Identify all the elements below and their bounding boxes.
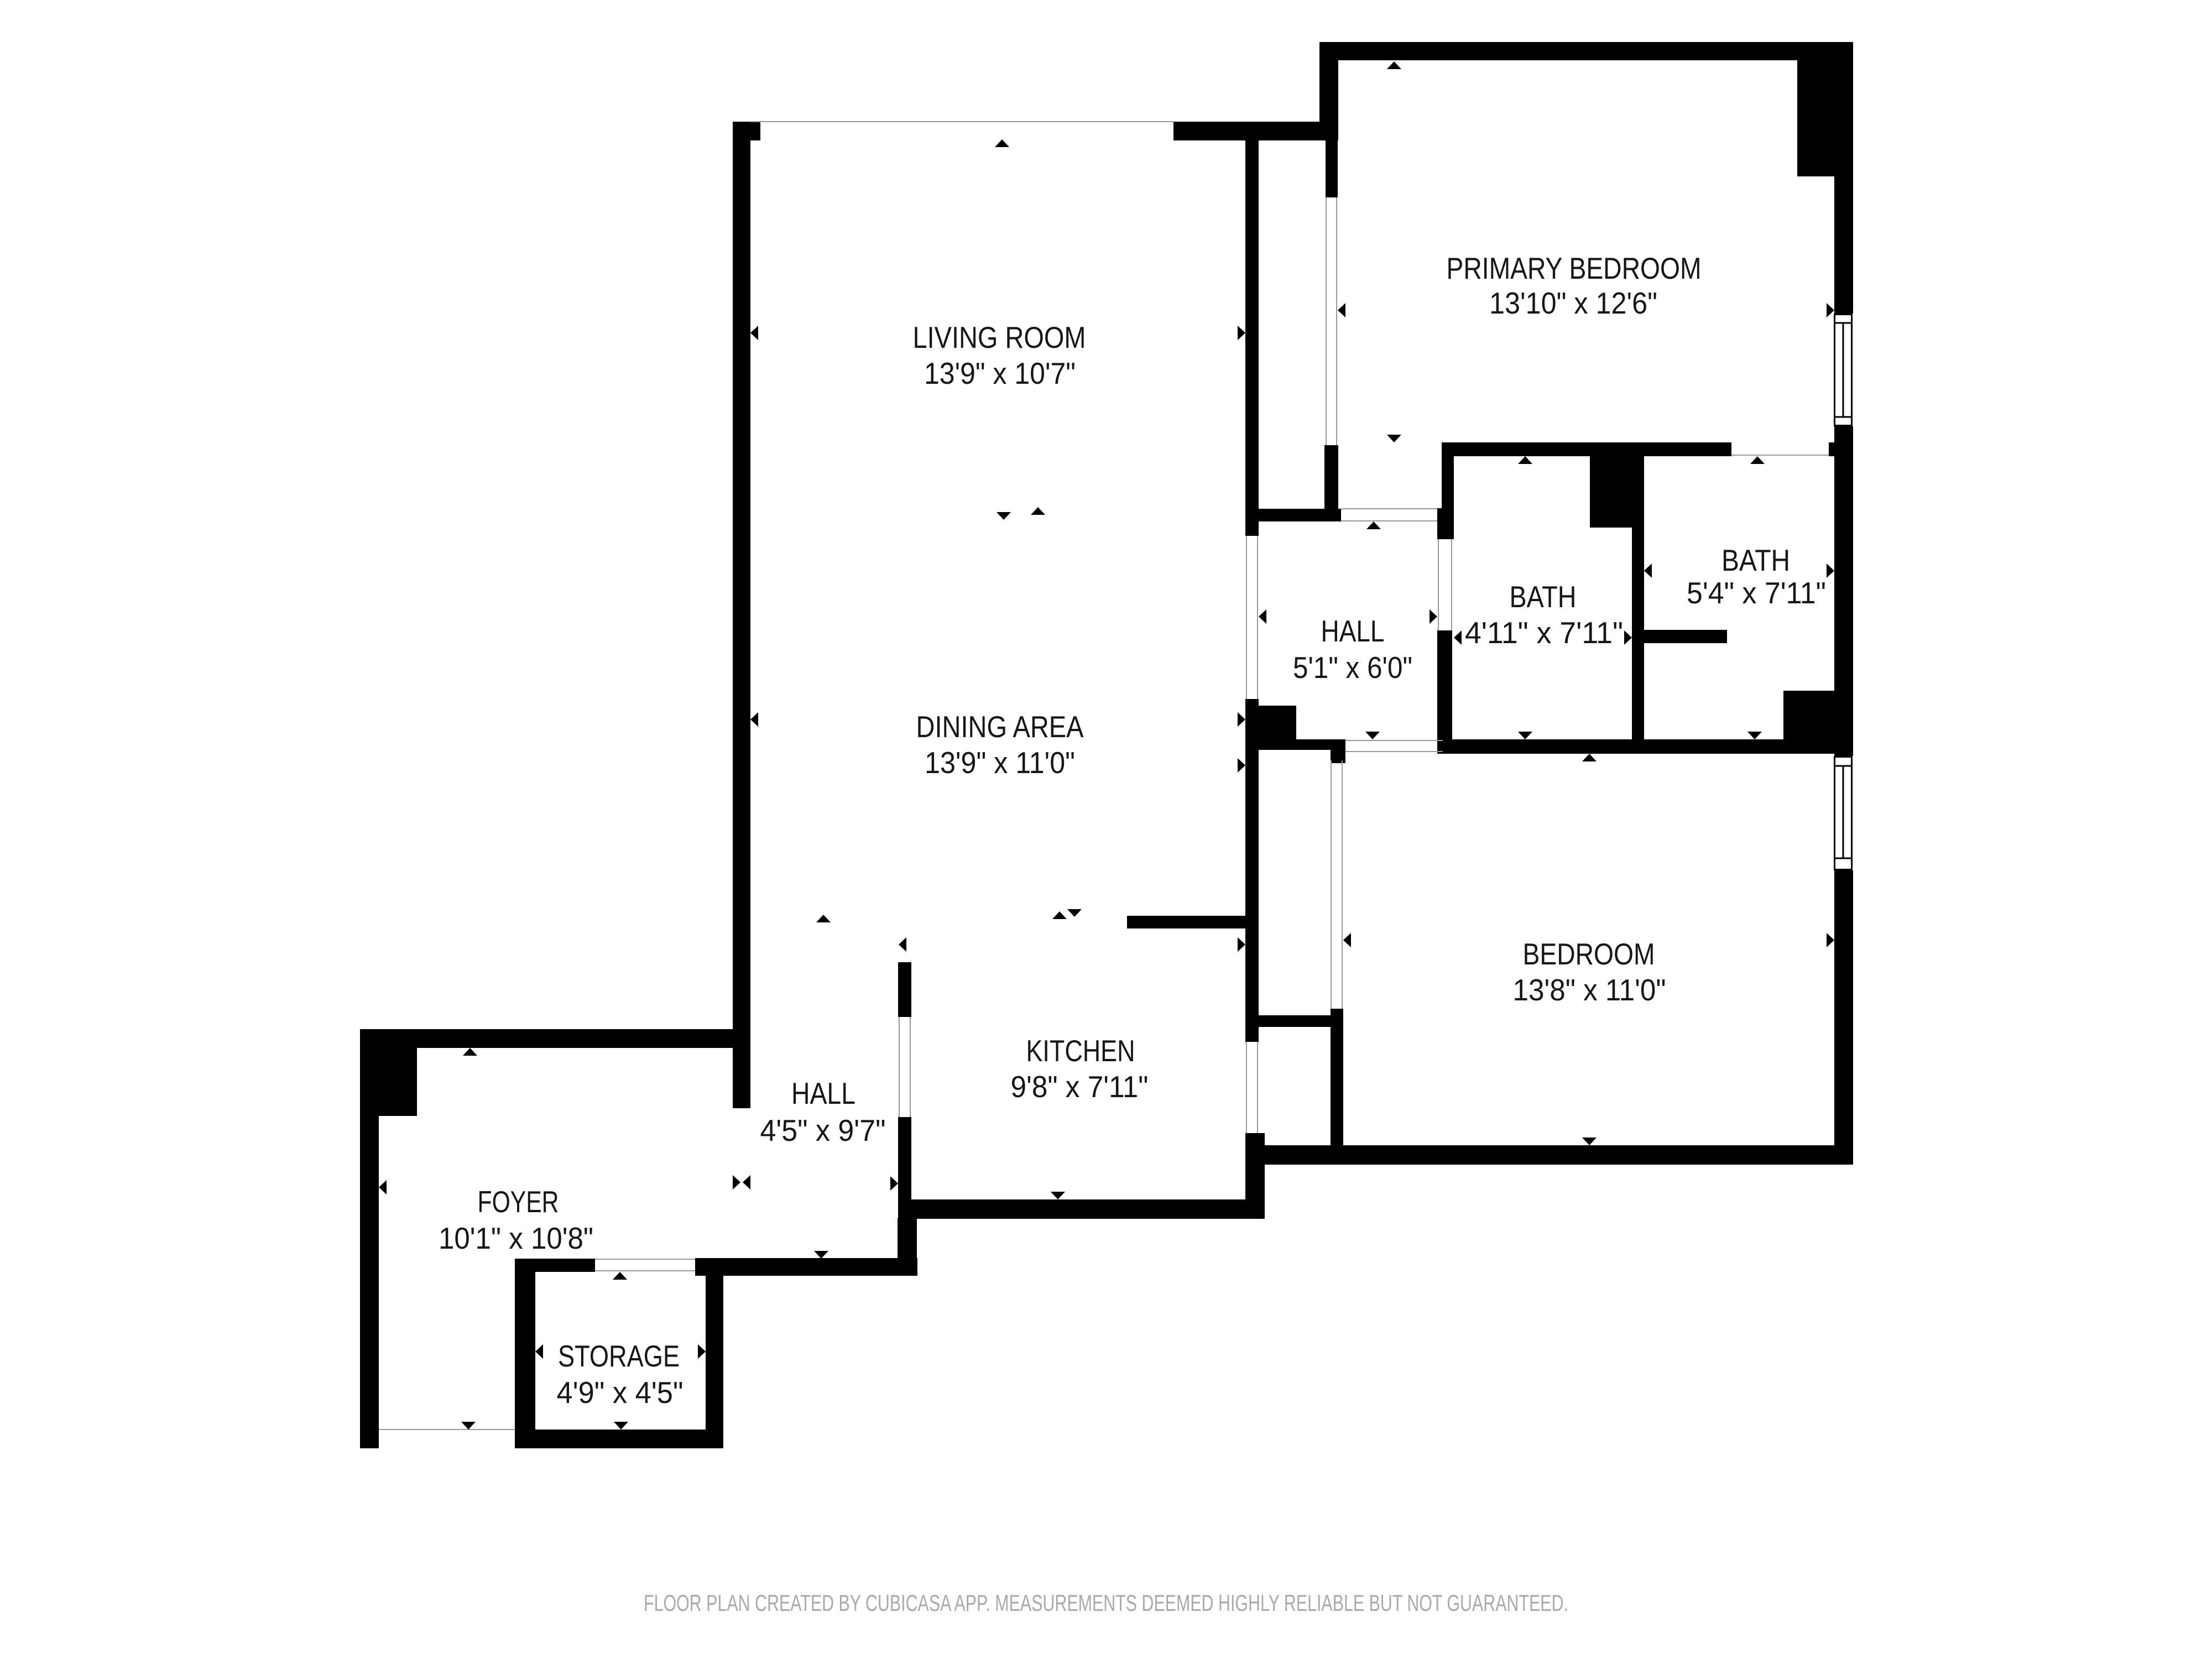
svg-text:FOYER: FOYER <box>478 1185 559 1219</box>
svg-text:4'9" x 4'5": 4'9" x 4'5" <box>557 1375 684 1410</box>
svg-text:STORAGE: STORAGE <box>558 1339 680 1373</box>
svg-text:9'8" x 7'11": 9'8" x 7'11" <box>1011 1070 1149 1104</box>
svg-text:FLOOR PLAN CREATED BY CUBICASA: FLOOR PLAN CREATED BY CUBICASA APP. MEAS… <box>644 1590 1568 1616</box>
svg-text:4'11" x 7'11": 4'11" x 7'11" <box>1465 615 1623 650</box>
svg-text:PRIMARY BEDROOM: PRIMARY BEDROOM <box>1447 251 1702 285</box>
svg-text:10'1" x 10'8": 10'1" x 10'8" <box>439 1221 593 1255</box>
svg-text:DINING AREA: DINING AREA <box>916 709 1084 744</box>
svg-text:4'5" x 9'7": 4'5" x 9'7" <box>760 1113 886 1147</box>
svg-text:13'9" x 10'7": 13'9" x 10'7" <box>924 356 1076 390</box>
svg-text:HALL: HALL <box>1321 614 1385 648</box>
svg-text:5'4" x 7'11": 5'4" x 7'11" <box>1687 576 1826 610</box>
svg-text:BATH: BATH <box>1721 543 1790 577</box>
svg-text:BEDROOM: BEDROOM <box>1523 937 1655 971</box>
svg-text:BATH: BATH <box>1510 580 1577 614</box>
svg-text:KITCHEN: KITCHEN <box>1026 1034 1135 1068</box>
svg-text:13'10" x 12'6": 13'10" x 12'6" <box>1489 286 1657 320</box>
svg-text:13'8" x 11'0": 13'8" x 11'0" <box>1513 973 1666 1007</box>
svg-text:13'9" x 11'0": 13'9" x 11'0" <box>925 745 1075 780</box>
svg-text:LIVING ROOM: LIVING ROOM <box>913 320 1086 354</box>
svg-text:5'1" x 6'0": 5'1" x 6'0" <box>1293 650 1412 685</box>
svg-text:HALL: HALL <box>791 1076 855 1110</box>
